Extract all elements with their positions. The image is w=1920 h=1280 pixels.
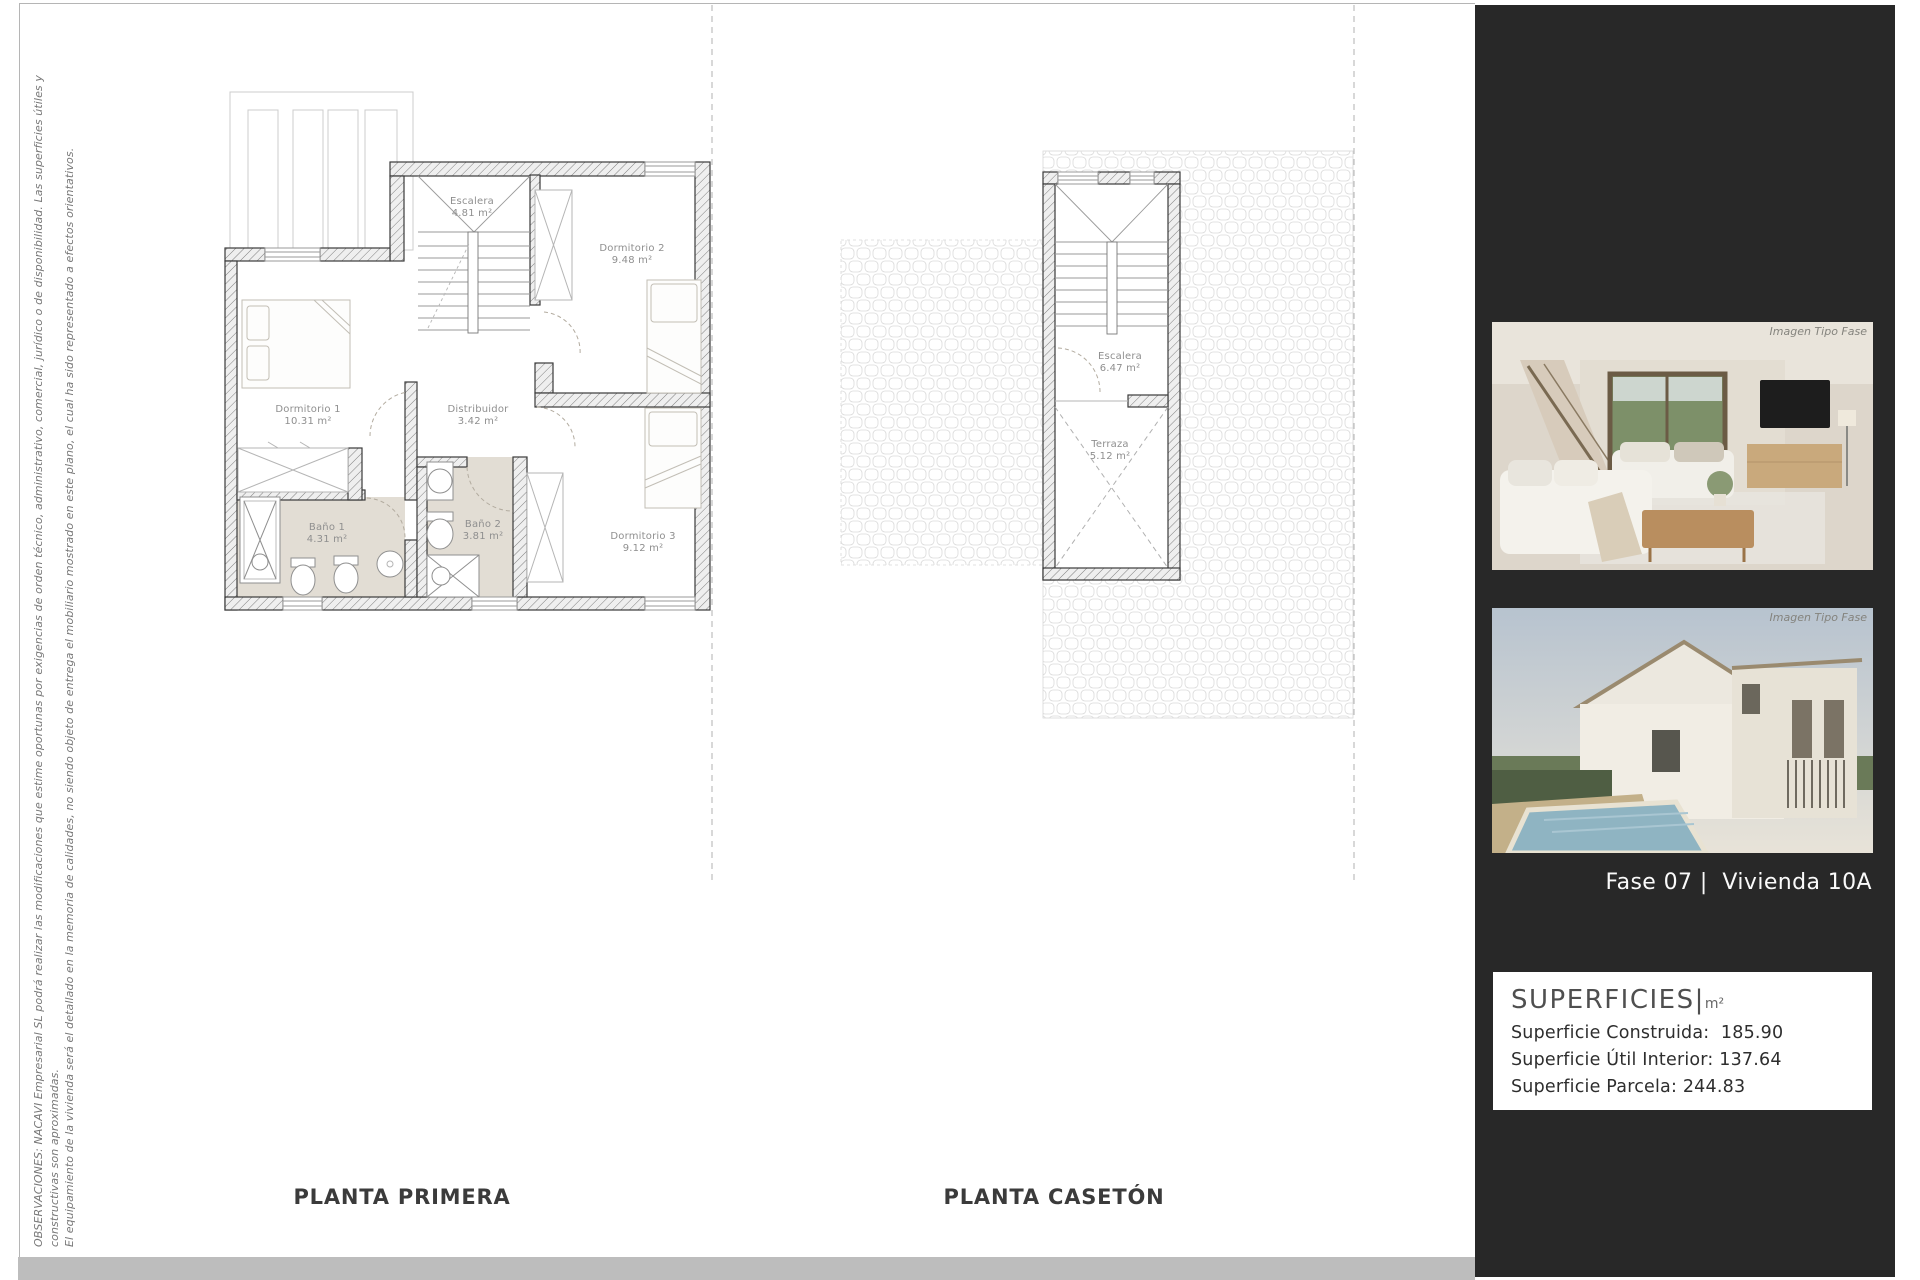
plan-sheet: OBSERVACIONES: NACAVI Empresarial SL pod…: [0, 0, 1920, 1280]
stair-box-floor: [1043, 172, 1180, 580]
room-label-dormitorio-2: Dormitorio 2 9.48 m²: [599, 243, 664, 266]
photo-living-room: Imagen Tipo Fase: [1492, 322, 1873, 570]
room-label-distribuidor: Distribuidor 3.42 m²: [448, 404, 509, 427]
photo-watermark: Imagen Tipo Fase: [1770, 325, 1867, 338]
room-label-dormitorio-3: Dormitorio 3 9.12 m²: [610, 531, 675, 554]
plan-title-primera: PLANTA PRIMERA: [293, 1185, 510, 1209]
superficie-util-row: Superficie Útil Interior: 137.64: [1511, 1047, 1872, 1074]
superficies-title: SUPERFICIES|m²: [1511, 985, 1872, 1015]
plan-title-caseton: PLANTA CASETÓN: [944, 1185, 1165, 1209]
room-label-dormitorio-1: Dormitorio 1 10.31 m²: [275, 404, 340, 427]
living-room-render: [1492, 322, 1873, 570]
room-label-terraza: Terraza 5.12 m²: [1090, 439, 1131, 462]
tv-shape: [1760, 380, 1830, 428]
photo-house-exterior: Imagen Tipo Fase: [1492, 608, 1873, 853]
superficie-parcela-row: Superficie Parcela: 244.83: [1511, 1074, 1872, 1101]
room-label-escalera-caseton: Escalera 6.47 m²: [1098, 351, 1142, 374]
superficies-rows: Superficie Construida: 185.90 Superficie…: [1511, 1020, 1872, 1101]
room-label-bano-2: Baño 2 3.81 m²: [463, 519, 504, 542]
planta-caseton-drawing: [841, 151, 1353, 718]
room-label-escalera-1: Escalera 4.81 m²: [450, 196, 494, 219]
superficies-box: SUPERFICIES|m² Superficie Construida: 18…: [1493, 972, 1872, 1110]
superficie-construida-row: Superficie Construida: 185.90: [1511, 1020, 1872, 1047]
superficies-unit: m²: [1705, 996, 1724, 1012]
room-label-bano-1: Baño 1 4.31 m²: [307, 522, 348, 545]
bottom-band: [18, 1257, 1475, 1280]
photo-watermark: Imagen Tipo Fase: [1770, 611, 1867, 624]
unit-label: Fase 07 | Vivienda 10A: [1475, 870, 1872, 895]
pool-shape: [1508, 802, 1706, 853]
pergola: [230, 92, 413, 250]
window-shape: [1652, 730, 1680, 772]
house-exterior-render: [1492, 608, 1873, 853]
